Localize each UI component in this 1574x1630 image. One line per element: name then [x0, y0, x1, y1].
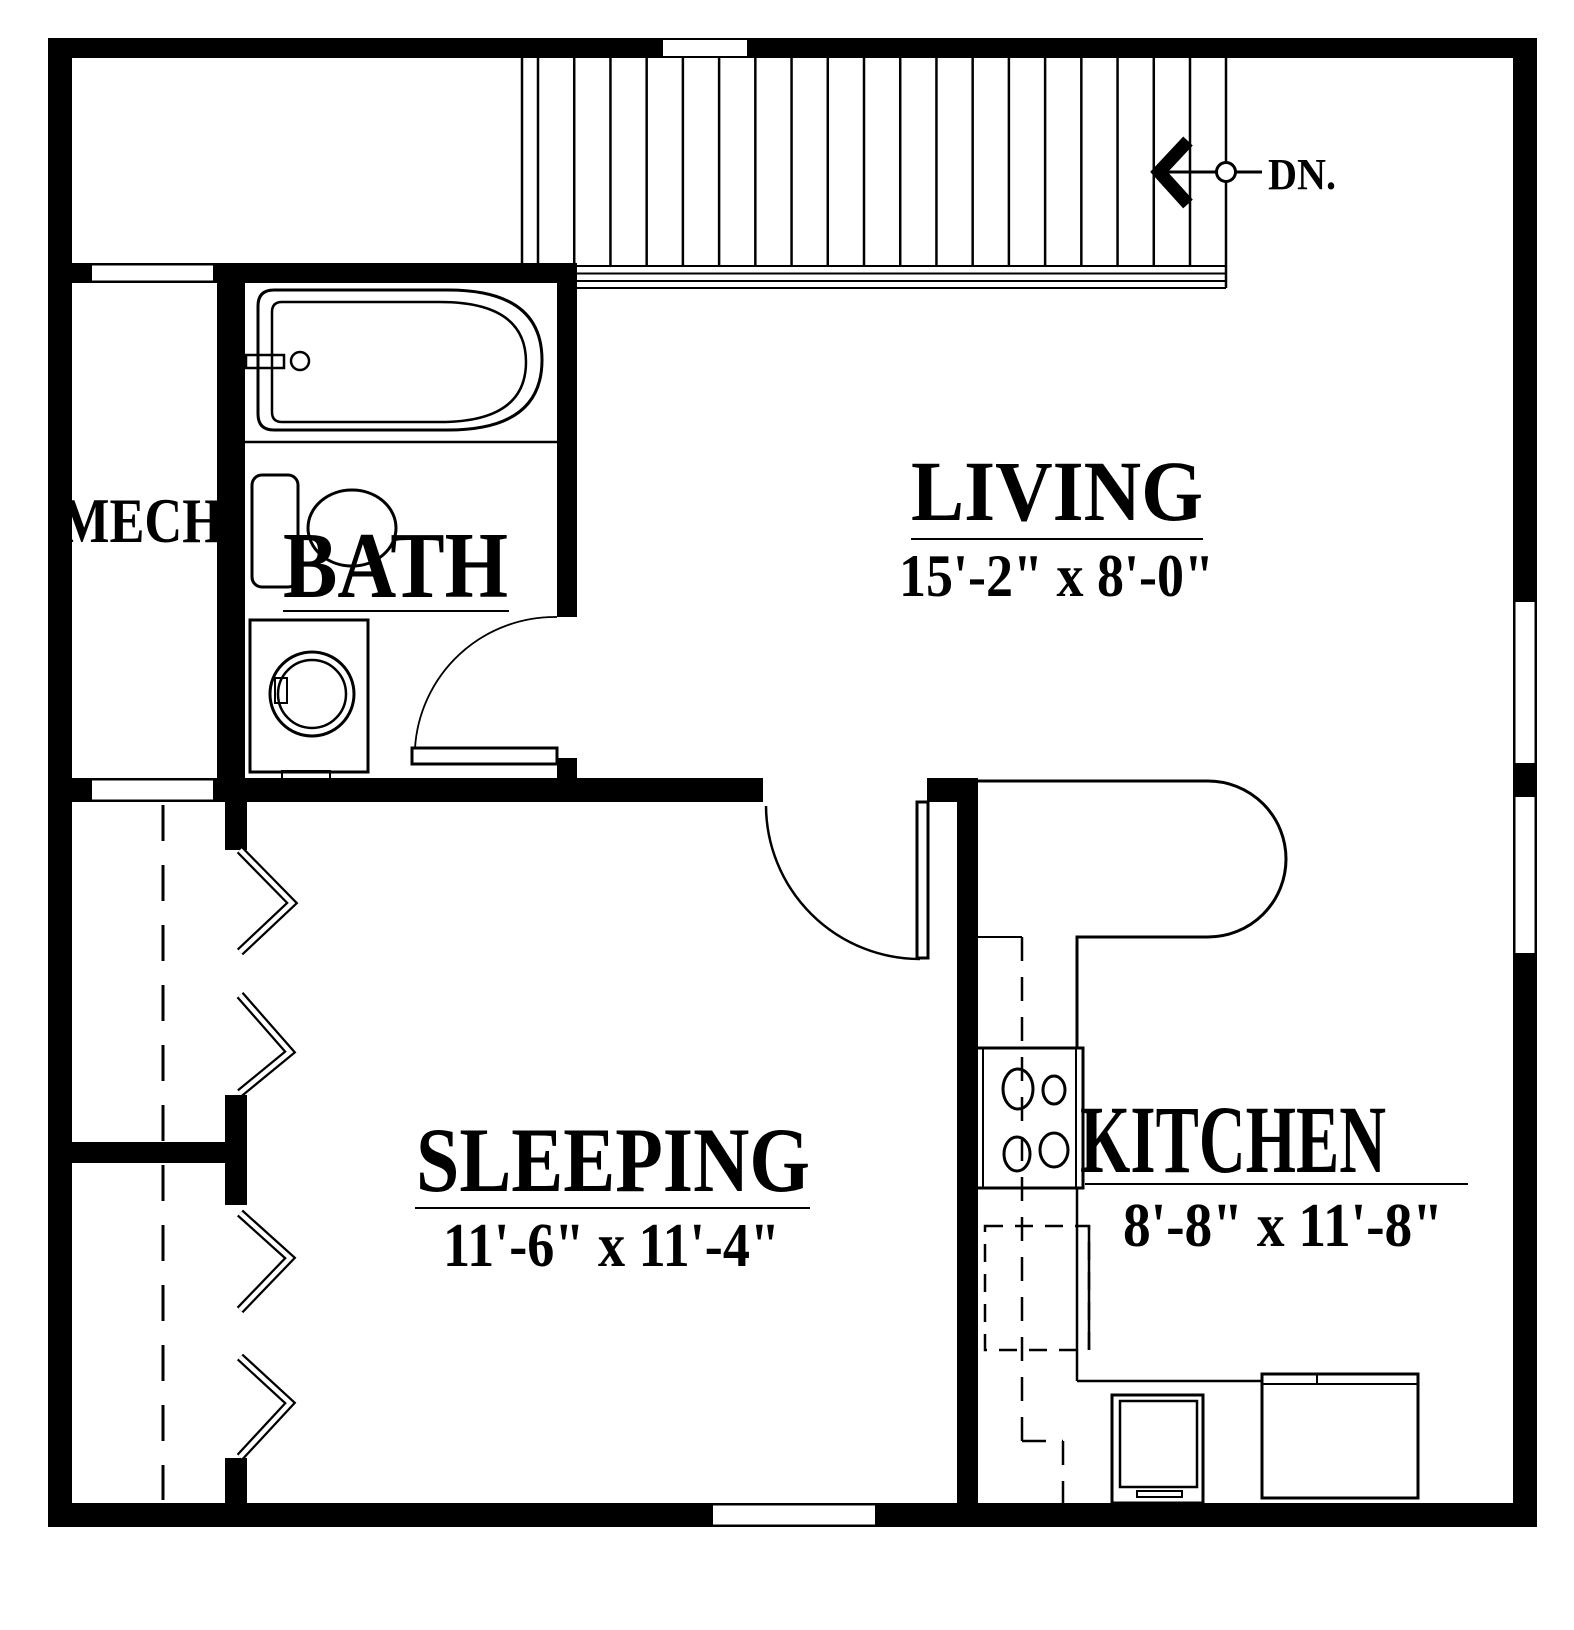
washer-door-inner-icon	[278, 660, 346, 728]
sleeping-door-leaf	[917, 802, 928, 958]
room-label-sleeping: SLEEPING	[416, 1109, 810, 1211]
burner-icon	[1043, 1076, 1065, 1104]
down-annotation: DN.	[1159, 141, 1336, 204]
wall-right	[1513, 38, 1537, 1527]
washer-body-icon	[250, 620, 368, 772]
stair-treads	[538, 58, 1190, 265]
bifold-door-icon	[240, 850, 292, 952]
burner-icon	[1004, 1137, 1030, 1171]
bath-door-leaf	[412, 748, 557, 764]
sink-appliance-inner	[1120, 1401, 1197, 1487]
sink-appliance-detail	[1137, 1491, 1182, 1497]
wall-closet-stub-2	[225, 1095, 247, 1142]
dishwasher-dashed-icon	[985, 1226, 1089, 1350]
room-labels: MECH BATH LIVING 15'-2" x 8'-0" SLEEPING…	[60, 443, 1468, 1280]
floor-plan-drawing: DN.	[0, 0, 1574, 1630]
room-label-bath: BATH	[283, 514, 508, 618]
opening-mech-top	[92, 266, 213, 281]
bifold-door-icon	[240, 1213, 290, 1310]
range-icon	[976, 1048, 1083, 1188]
kitchen-dims: 8'-8" x 11'-8"	[1123, 1192, 1443, 1260]
room-label-mech: MECH	[60, 485, 223, 556]
wall-top	[48, 38, 1537, 58]
window-right-lower	[1516, 797, 1535, 953]
bifold-door-icon	[240, 1357, 290, 1457]
stairs	[522, 58, 1226, 288]
living-dims: 15'-2" x 8'-0"	[899, 543, 1214, 609]
burner-icon	[1003, 1069, 1033, 1109]
tub-drain-icon	[291, 352, 309, 370]
peninsula-counter-icon	[978, 781, 1286, 1048]
burner-icon	[1040, 1133, 1068, 1167]
sleeping-dims: 11'-6" x 11'-4"	[443, 1212, 780, 1280]
window-bottom	[713, 1506, 875, 1525]
room-label-living: LIVING	[911, 443, 1203, 539]
window-top	[663, 40, 747, 56]
wall-closet-stub-4	[225, 1458, 247, 1505]
bath-door-swing-arc	[415, 617, 557, 748]
floor-plan-page: DN.	[0, 0, 1574, 1630]
tub-faucet-icon	[246, 355, 284, 368]
wall-closet-stub-3	[225, 1163, 247, 1205]
washer-door-icon	[270, 652, 354, 736]
refrigerator-icon	[1262, 1374, 1418, 1498]
wall-bath-right	[557, 263, 577, 617]
sleeping-door-swing-arc	[766, 806, 920, 959]
upper-cabinet-dashed-line	[1022, 937, 1063, 1503]
wall-closet-mid	[48, 1142, 247, 1163]
window-right-upper	[1516, 602, 1535, 763]
wall-closet-stub-1	[225, 802, 247, 850]
down-label: DN.	[1268, 150, 1336, 199]
down-arrow-circle	[1217, 163, 1236, 182]
opening-mech-bottom	[92, 781, 213, 800]
stair-railing	[577, 266, 1226, 288]
room-label-kitchen: KITCHEN	[1080, 1086, 1386, 1193]
wall-bath-door-stub	[557, 758, 577, 780]
